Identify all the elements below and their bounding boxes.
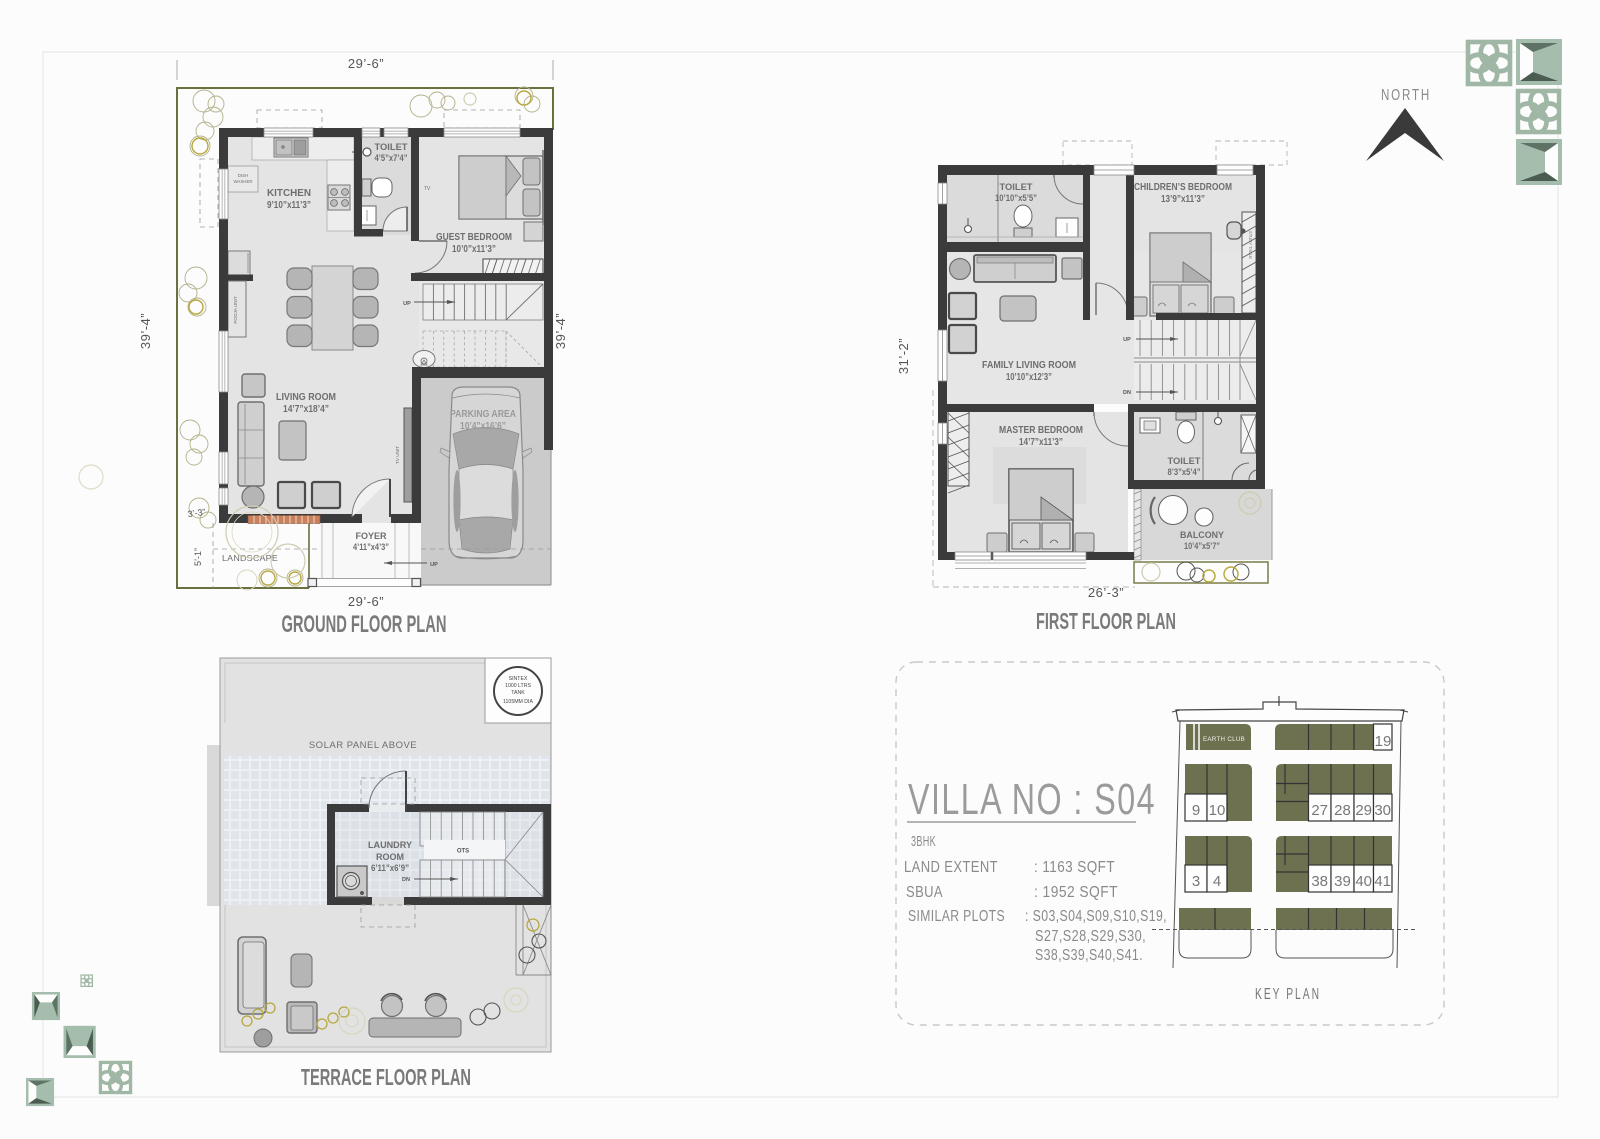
svg-text:38: 38: [1311, 873, 1328, 890]
svg-text:TANK: TANK: [511, 690, 525, 696]
svg-text:SINTEX: SINTEX: [509, 676, 528, 682]
svg-text:5’-1”: 5’-1”: [193, 548, 203, 566]
svg-text:BALCONY: BALCONY: [1180, 530, 1225, 541]
svg-text:DISH: DISH: [238, 173, 249, 178]
svg-text:8’3”x5’4”: 8’3”x5’4”: [1168, 467, 1201, 477]
svg-text:9’10”x11’3”: 9’10”x11’3”: [267, 200, 311, 211]
svg-text:KITCHEN: KITCHEN: [267, 187, 311, 199]
svg-text:LIVING ROOM: LIVING ROOM: [276, 391, 336, 403]
svg-text:LAND EXTENT: LAND EXTENT: [904, 859, 998, 876]
svg-text:28: 28: [1334, 802, 1351, 819]
svg-text:39’-4”: 39’-4”: [138, 313, 153, 349]
svg-text:39’-4”: 39’-4”: [553, 313, 568, 349]
svg-text:KEY PLAN: KEY PLAN: [1255, 986, 1321, 1003]
svg-text:40: 40: [1355, 873, 1372, 890]
svg-text:10’4”x5’7”: 10’4”x5’7”: [1184, 541, 1220, 551]
svg-text:29: 29: [1355, 802, 1372, 819]
svg-text:: 1952 SQFT: : 1952 SQFT: [1034, 884, 1118, 901]
svg-text:3: 3: [1192, 873, 1200, 890]
svg-text:VILLA NO : S04: VILLA NO : S04: [908, 775, 1156, 824]
svg-text:TERRACE FLOOR PLAN: TERRACE FLOOR PLAN: [301, 1064, 471, 1090]
svg-text:9: 9: [1192, 802, 1200, 819]
svg-text:4’5”x7’4”: 4’5”x7’4”: [375, 153, 408, 163]
svg-text:PARKING AREA: PARKING AREA: [450, 408, 516, 420]
svg-text:TOILET: TOILET: [1000, 182, 1033, 193]
svg-text:SBUA: SBUA: [906, 884, 943, 901]
svg-text:31’-2”: 31’-2”: [896, 338, 911, 374]
svg-text:LAUNDRY: LAUNDRY: [368, 840, 413, 851]
svg-text:TV UNIT: TV UNIT: [395, 446, 400, 464]
svg-text:: 1163 SQFT: : 1163 SQFT: [1034, 859, 1115, 876]
svg-text:4’11”x4’3”: 4’11”x4’3”: [353, 542, 389, 552]
svg-text:OTS: OTS: [457, 849, 469, 855]
svg-text:TV: TV: [424, 186, 431, 192]
svg-text:10’4”x16’6”: 10’4”x16’6”: [460, 421, 506, 432]
svg-text:26’-3”: 26’-3”: [1088, 585, 1124, 600]
svg-text:UP: UP: [1123, 337, 1131, 343]
svg-text:29’-6”: 29’-6”: [348, 594, 384, 609]
svg-text:GROUND FLOOR PLAN: GROUND FLOOR PLAN: [282, 611, 447, 638]
svg-text:WASHER: WASHER: [233, 179, 252, 184]
svg-text:10: 10: [1209, 802, 1226, 819]
svg-text:10’0”x11’3”: 10’0”x11’3”: [452, 244, 496, 255]
svg-text:MASTER BEDROOM: MASTER BEDROOM: [999, 424, 1083, 436]
svg-text:TOILET: TOILET: [1168, 456, 1201, 467]
svg-text:1000 LTRS: 1000 LTRS: [505, 683, 531, 689]
svg-text:S27,S28,S29,S30,: S27,S28,S29,S30,: [1035, 928, 1146, 945]
svg-text:1105MM DIA: 1105MM DIA: [503, 699, 533, 705]
svg-text:SIMILAR PLOTS: SIMILAR PLOTS: [908, 908, 1005, 925]
svg-text:CHILDREN’S BEDROOM: CHILDREN’S BEDROOM: [1134, 181, 1232, 193]
svg-text:DN: DN: [1123, 390, 1131, 396]
svg-text:4: 4: [1213, 873, 1221, 890]
svg-text:FOYER: FOYER: [356, 531, 387, 542]
svg-text:10’10”x5’5”: 10’10”x5’5”: [995, 193, 1037, 203]
svg-text:14’7”x18’4”: 14’7”x18’4”: [283, 404, 329, 415]
svg-text:STUDY TABLE: STUDY TABLE: [1248, 231, 1253, 259]
svg-text:DN: DN: [402, 877, 410, 883]
svg-text:30: 30: [1374, 802, 1391, 819]
svg-text:TOILET: TOILET: [375, 142, 408, 153]
svg-text:19: 19: [1375, 733, 1392, 750]
svg-text:41: 41: [1374, 873, 1391, 890]
svg-text:6’11”x6’9”: 6’11”x6’9”: [371, 863, 409, 873]
svg-text:29’-6”: 29’-6”: [348, 56, 384, 71]
svg-text:: S03,S04,S09,S10,S19,: : S03,S04,S09,S10,S19,: [1025, 908, 1167, 925]
svg-text:27: 27: [1311, 802, 1328, 819]
svg-text:FAMILY LIVING ROOM: FAMILY LIVING ROOM: [982, 359, 1076, 371]
svg-text:S38,S39,S40,S41.: S38,S39,S40,S41.: [1035, 947, 1143, 964]
svg-text:10’10”x12’3”: 10’10”x12’3”: [1006, 372, 1052, 383]
svg-text:FIRST FLOOR PLAN: FIRST FLOOR PLAN: [1036, 608, 1176, 634]
svg-text:3BHK: 3BHK: [911, 834, 936, 850]
svg-text:14’7”x11’3”: 14’7”x11’3”: [1019, 437, 1063, 448]
svg-text:SOLAR PANEL ABOVE: SOLAR PANEL ABOVE: [309, 740, 417, 751]
svg-text:UP: UP: [430, 562, 438, 568]
svg-text:GUEST BEDROOM: GUEST BEDROOM: [436, 231, 512, 243]
svg-text:POOJA UNIT: POOJA UNIT: [233, 296, 238, 324]
svg-text:ROOM: ROOM: [376, 852, 404, 863]
svg-text:EARTH CLUB: EARTH CLUB: [1203, 736, 1245, 743]
svg-text:39: 39: [1334, 873, 1351, 890]
svg-text:NORTH: NORTH: [1381, 87, 1431, 104]
svg-text:UP: UP: [403, 301, 411, 307]
svg-text:13’9”x11’3”: 13’9”x11’3”: [1161, 194, 1205, 205]
